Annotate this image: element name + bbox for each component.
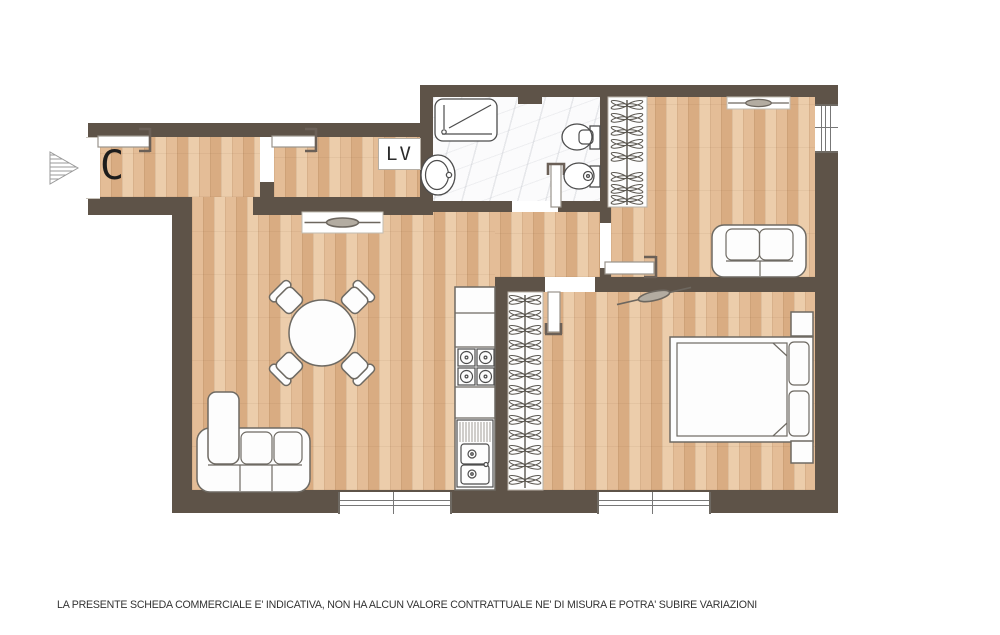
washer-text: LV bbox=[386, 143, 413, 165]
loveseat bbox=[712, 225, 806, 277]
radiator-living bbox=[302, 212, 383, 233]
furniture-layer bbox=[0, 0, 1000, 635]
bathroom-sink bbox=[421, 155, 455, 195]
wardrobe-bedroom2 bbox=[508, 292, 543, 490]
nightstand bbox=[791, 441, 813, 463]
shower bbox=[435, 99, 497, 141]
wardrobe-bedroom1 bbox=[608, 97, 647, 207]
bedroom1-door-leaf bbox=[605, 256, 656, 278]
toilet bbox=[562, 124, 600, 150]
radiator-bedroom2 bbox=[616, 283, 692, 309]
dining-set bbox=[268, 279, 376, 387]
bedroom2-door-leaf bbox=[545, 292, 562, 334]
floor-plan: C LV LA PRESENTE SCHEDA COMMERCIALE E' I… bbox=[0, 0, 1000, 635]
nightstand bbox=[791, 312, 813, 336]
sofa bbox=[197, 392, 310, 492]
disclaimer-text: LA PRESENTE SCHEDA COMMERCIALE E' INDICA… bbox=[57, 599, 757, 611]
double-bed bbox=[670, 337, 813, 442]
washing-machine-label: LV bbox=[378, 138, 421, 170]
camera-marker-label: C bbox=[100, 146, 124, 186]
kitchen-counter bbox=[455, 287, 495, 490]
dining-table bbox=[289, 300, 355, 366]
bathroom-door-leaf bbox=[548, 164, 564, 207]
radiator-bedroom1 bbox=[727, 97, 790, 109]
camera-direction-icon bbox=[46, 152, 80, 184]
laundry-door-leaf bbox=[272, 128, 316, 152]
bidet bbox=[564, 163, 600, 189]
